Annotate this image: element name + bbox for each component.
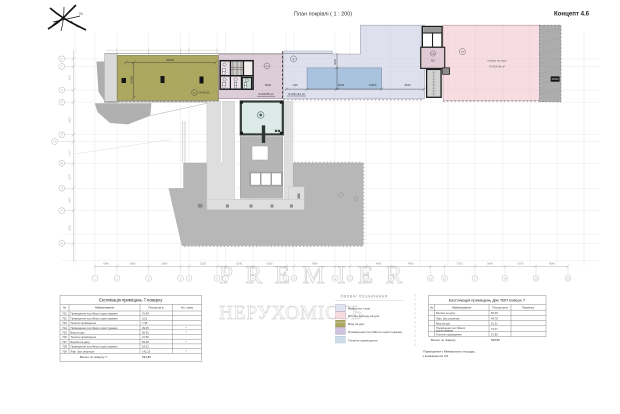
svg-text:*Приміщення з Мінімальних площ: *Приміщення з Мінімальних площадь, xyxy=(423,349,476,353)
svg-text:S=191,91 м²: S=191,91 м² xyxy=(288,92,305,96)
svg-text:534,85: 534,85 xyxy=(142,355,151,359)
svg-text:Всього по поверху 7: Всього по поверху 7 xyxy=(80,355,107,359)
svg-text:1,90: 1,90 xyxy=(292,83,298,87)
svg-text:Навіси на т.пов.: Навіси на т.пов. xyxy=(348,306,371,310)
svg-text:Примітка: Примітка xyxy=(522,305,534,309)
svg-text:5,51: 5,51 xyxy=(142,316,148,320)
svg-text:528,85: 528,85 xyxy=(491,338,500,342)
svg-text:21,56: 21,56 xyxy=(142,335,149,339)
svg-text:Експлікація приміщень 7 поверх: Експлікація приміщень 7 поверху xyxy=(99,298,163,303)
svg-text:4140: 4140 xyxy=(103,261,109,265)
svg-text:703: 703 xyxy=(62,321,67,325)
svg-text:39,05: 39,05 xyxy=(142,326,149,330)
svg-text:5700: 5700 xyxy=(457,261,463,265)
svg-text:6900: 6900 xyxy=(69,225,72,231)
svg-text:5200: 5200 xyxy=(69,174,72,180)
svg-text:7400: 7400 xyxy=(408,261,414,265)
svg-text:Умовні позначення: Умовні позначення xyxy=(340,294,388,299)
svg-text:7,38: 7,38 xyxy=(142,321,148,325)
svg-text:П: П xyxy=(61,133,63,137)
svg-text:707: 707 xyxy=(62,340,67,344)
svg-text:Приміщення постійного користув: Приміщення постійного користування xyxy=(71,345,118,349)
svg-text:И: И xyxy=(61,241,63,245)
svg-text:3640: 3640 xyxy=(404,83,411,87)
svg-text:тераса на даху: тераса на даху xyxy=(487,59,507,63)
svg-text:84,09: 84,09 xyxy=(491,311,498,315)
svg-text:Концепт 4.6: Концепт 4.6 xyxy=(554,10,590,17)
svg-text:708: 708 xyxy=(62,345,67,349)
svg-text:3000: 3000 xyxy=(69,75,72,81)
svg-text:73,47: 73,47 xyxy=(491,327,498,331)
svg-text:План покрівлі ( 1 : 200): План покрівлі ( 1 : 200) xyxy=(294,12,352,18)
svg-text:Л: Л xyxy=(61,186,63,190)
svg-text:5640: 5640 xyxy=(265,83,272,87)
svg-text:706: 706 xyxy=(62,335,67,339)
svg-text:4140: 4140 xyxy=(69,150,72,156)
svg-text:№: № xyxy=(63,306,66,310)
svg-text:Технічні приміщення: Технічні приміщення xyxy=(71,335,97,339)
svg-text:Технічні приміщення: Технічні приміщення xyxy=(436,333,462,337)
svg-text:Р: Р xyxy=(61,100,63,104)
svg-text:Площа кв.м: Площа кв.м xyxy=(148,306,163,310)
svg-text:56,91: 56,91 xyxy=(142,331,149,335)
svg-text:Д/б без виходу на дах: Д/б без виходу на дах xyxy=(348,314,380,318)
svg-text:Ліфт. Зал рецепція: Ліфт. Зал рецепція xyxy=(71,349,95,353)
svg-text:*: * xyxy=(185,331,186,335)
svg-text:7680: 7680 xyxy=(312,261,318,265)
svg-text:*: * xyxy=(185,340,186,344)
svg-text:142,15: 142,15 xyxy=(142,349,151,353)
svg-text:8,6: 8,6 xyxy=(431,59,435,63)
svg-text:5990: 5990 xyxy=(162,261,168,265)
svg-text:*: * xyxy=(185,326,186,330)
svg-text:5640: 5640 xyxy=(487,261,493,265)
svg-text:С: С xyxy=(61,88,63,92)
svg-text:18,52: 18,52 xyxy=(142,345,149,349)
svg-text:Приміщення постійного користув: Приміщення постійного користування xyxy=(71,326,118,330)
svg-text:Балкон на даху: Балкон на даху xyxy=(436,311,456,315)
svg-text:76,48: 76,48 xyxy=(142,312,149,316)
svg-text:Н: Н xyxy=(54,140,56,144)
svg-text:6180: 6180 xyxy=(267,261,273,265)
svg-text:Приміщення постійного користув: Приміщення постійного користування xyxy=(71,316,118,320)
svg-text:з коефіцієнтом 0,5: з коефіцієнтом 0,5 xyxy=(423,354,449,358)
svg-text:Експлікація приміщень Дім ТВП: Експлікація приміщень Дім ТВП поверх 7 xyxy=(449,298,526,303)
svg-text:61,31: 61,31 xyxy=(491,322,498,326)
svg-text:701: 701 xyxy=(62,312,67,316)
svg-text:6900: 6900 xyxy=(69,117,72,123)
svg-text:Пн: Пн xyxy=(79,12,83,16)
svg-text:14940: 14940 xyxy=(369,83,377,87)
svg-text:94,78: 94,78 xyxy=(491,316,498,320)
svg-text:Вхід на дах: Вхід на дах xyxy=(348,322,365,326)
svg-text:705: 705 xyxy=(62,331,67,335)
svg-text:Вхід на дах: Вхід на дах xyxy=(436,322,451,326)
svg-text:*: * xyxy=(185,349,186,353)
svg-text:М: М xyxy=(61,161,63,165)
svg-text:Кіл. прим: Кіл. прим xyxy=(181,306,193,310)
svg-text:4640: 4640 xyxy=(69,197,72,203)
svg-text:Вхід на дах: Вхід на дах xyxy=(71,331,86,335)
svg-text:5640: 5640 xyxy=(338,83,345,87)
svg-text:709: 709 xyxy=(62,349,67,353)
svg-text:Найменування: Найменування xyxy=(95,306,115,310)
svg-text:5900: 5900 xyxy=(130,261,136,265)
svg-text:10400: 10400 xyxy=(129,76,133,84)
svg-text:Площа кв.м: Площа кв.м xyxy=(492,305,507,309)
svg-text:№: № xyxy=(430,305,433,309)
svg-text:5140: 5140 xyxy=(236,261,242,265)
svg-text:Басейн на даху: Басейн на даху xyxy=(71,340,91,344)
svg-text:84,48: 84,48 xyxy=(142,340,149,344)
svg-text:Технічні приміщення: Технічні приміщення xyxy=(71,321,97,325)
svg-text:Приміщення постійного користув: Приміщення постійного користування xyxy=(71,312,118,316)
svg-text:6040: 6040 xyxy=(549,261,555,265)
svg-text:Ліфт. Зал рецепція: Ліфт. Зал рецепція xyxy=(436,316,460,320)
svg-text:Всього по поверху: Всього по поверху xyxy=(431,338,456,342)
svg-text:57,85: 57,85 xyxy=(491,333,498,337)
svg-text:користування: користування xyxy=(436,329,454,332)
svg-text:4640: 4640 xyxy=(376,261,382,265)
svg-text:702: 702 xyxy=(62,316,67,320)
svg-text:5200: 5200 xyxy=(200,261,206,265)
svg-text:704: 704 xyxy=(62,326,67,330)
svg-text:Найменування: Найменування xyxy=(452,305,472,309)
svg-text:Технічні приміщення: Технічні приміщення xyxy=(348,338,378,342)
svg-text:Приміщення постійного користув: Приміщення постійного користування xyxy=(348,330,402,334)
svg-text:S=40,05: S=40,05 xyxy=(199,91,210,95)
svg-text:5700: 5700 xyxy=(518,261,524,265)
svg-text:S=85,85 м²: S=85,85 м² xyxy=(258,92,273,96)
